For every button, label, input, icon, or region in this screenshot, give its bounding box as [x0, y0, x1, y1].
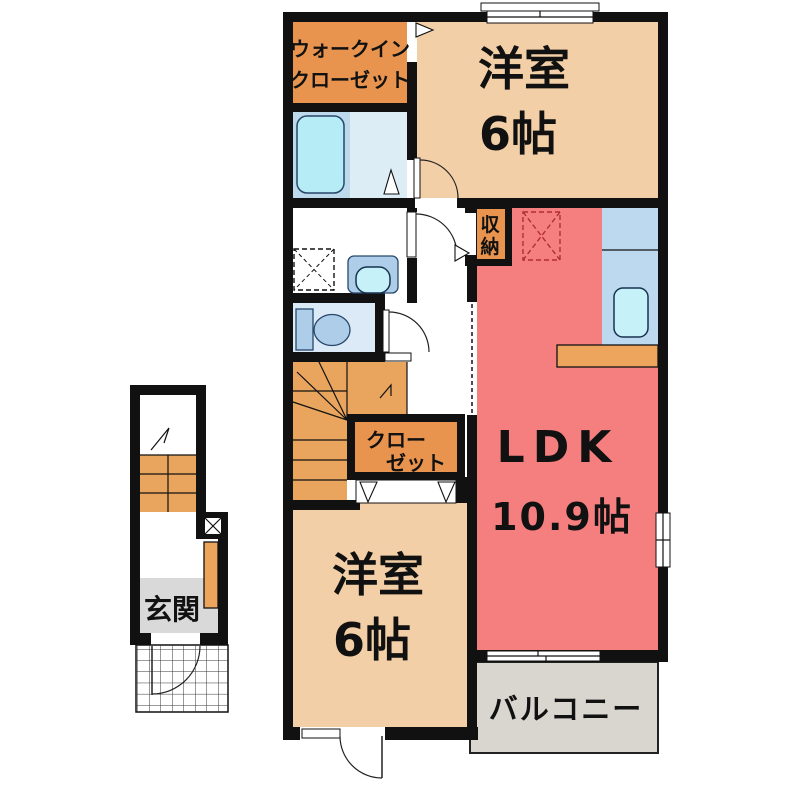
- kitchen-sink: [614, 288, 648, 337]
- toilet-threshold: [385, 353, 411, 361]
- toilet-bowl: [314, 315, 350, 346]
- storage-label-char2: 納: [480, 235, 499, 258]
- storage-door-gap: [465, 213, 476, 255]
- top-window-sill: [481, 3, 599, 11]
- washbasin-bowl: [356, 267, 390, 293]
- storage-label-char1: 収: [480, 214, 500, 236]
- bedroom-top-name: 洋室: [478, 42, 570, 96]
- wall-left: [283, 12, 293, 740]
- wall-walkin-bottom: [283, 103, 417, 112]
- bathtub: [297, 116, 344, 193]
- kitchen-counter: [557, 345, 658, 367]
- bathroom-floor-right: [350, 112, 407, 198]
- bedroom-bottom-door-sidelight: [302, 729, 340, 738]
- bedroom-top-size: 6帖: [479, 107, 557, 161]
- wall-washroom-toilet: [283, 293, 385, 303]
- wall-balcony-left: [467, 650, 477, 740]
- wall-ldk-west: [467, 202, 477, 650]
- balcony-label: バルコニー: [489, 692, 643, 726]
- closet-label-line2: ゼット: [386, 451, 446, 475]
- wall-top: [283, 12, 668, 22]
- bedroom-top-door-panel: [414, 158, 420, 198]
- washroom-door-panel: [407, 212, 416, 257]
- wall-stairs-bottom: [283, 500, 360, 510]
- ldk-name: LDK: [497, 422, 620, 473]
- bedroom-bottom-size: 6帖: [333, 613, 411, 667]
- porch-tiles: [136, 645, 228, 712]
- toilet-tank: [296, 309, 313, 350]
- shoe-cabinet: [204, 542, 218, 608]
- walkin-label-line1: ウォークイン: [290, 37, 410, 61]
- entrance-door-gap: [151, 633, 200, 645]
- bedroom-top-door-gap: [415, 198, 457, 208]
- toilet-door-panel: [383, 310, 389, 352]
- wall-toilet-bottom: [283, 352, 385, 362]
- entrance-label: 玄関: [144, 593, 200, 626]
- floor-plan-drawing: ウォークイン クローゼット 洋室 6帖 収 納 クロー ゼット LDK 10.9…: [0, 0, 800, 800]
- walkin-label-line2: クローゼット: [290, 68, 410, 92]
- closet-label-line1: クロー: [366, 428, 426, 452]
- ldk-size: 10.9帖: [491, 495, 633, 539]
- floor-plan-page: ウォークイン クローゼット 洋室 6帖 収 納 クロー ゼット LDK 10.9…: [0, 0, 800, 800]
- bedroom-bottom-name: 洋室: [332, 548, 424, 602]
